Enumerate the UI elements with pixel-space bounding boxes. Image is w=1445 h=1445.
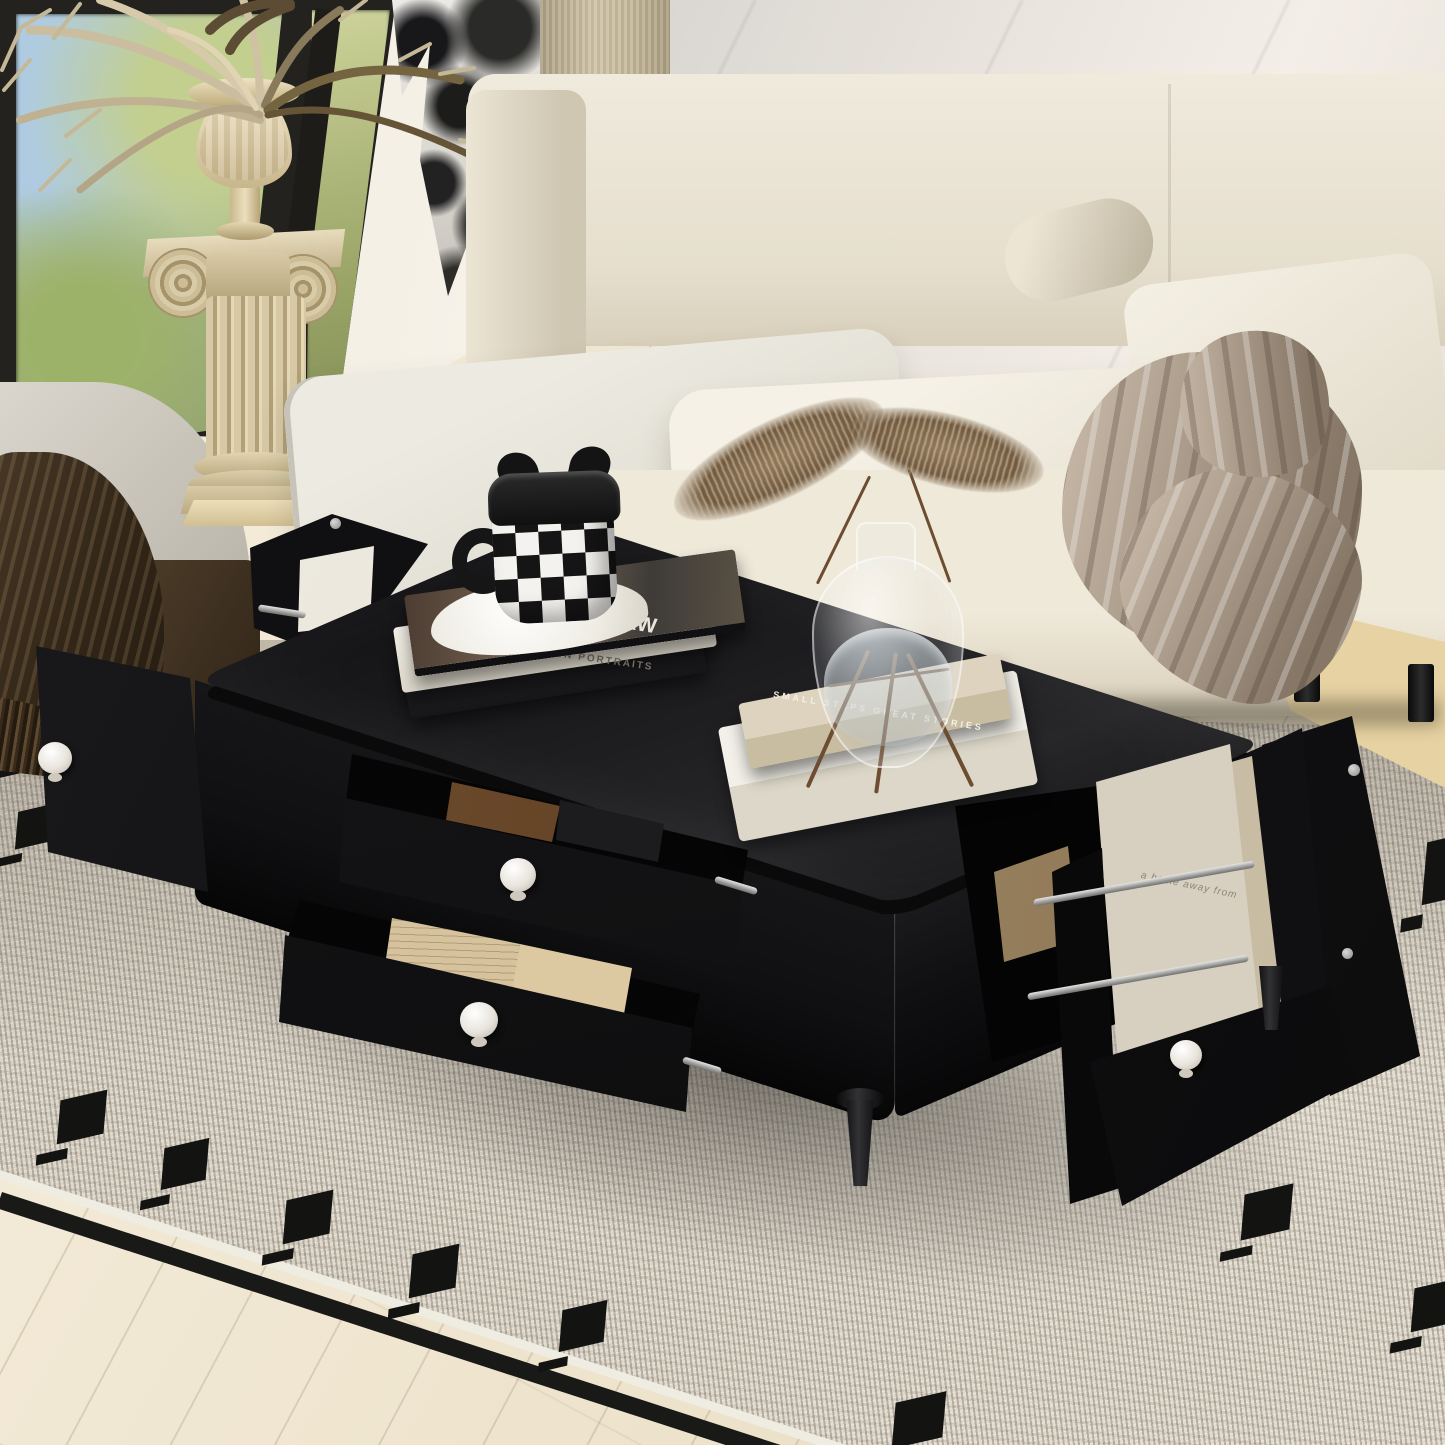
left-door-knob	[38, 742, 72, 774]
right-door-knob	[1170, 1040, 1202, 1070]
sofa-leg	[1408, 664, 1434, 722]
mug-lid	[487, 470, 621, 527]
right-door-hinge-bottom	[1342, 948, 1353, 959]
drawer-top-knob	[500, 858, 536, 892]
drawer-bottom-knob	[460, 1002, 498, 1038]
dried-palm-fronds	[0, 0, 520, 350]
vase-neck	[856, 522, 916, 570]
living-room-photo: a home away from CARL BENGTSSON PORTRAIT…	[0, 0, 1445, 1445]
vase-water	[824, 628, 952, 746]
right-door-hinge-top	[1348, 764, 1360, 776]
rear-door-hinge	[330, 518, 341, 529]
